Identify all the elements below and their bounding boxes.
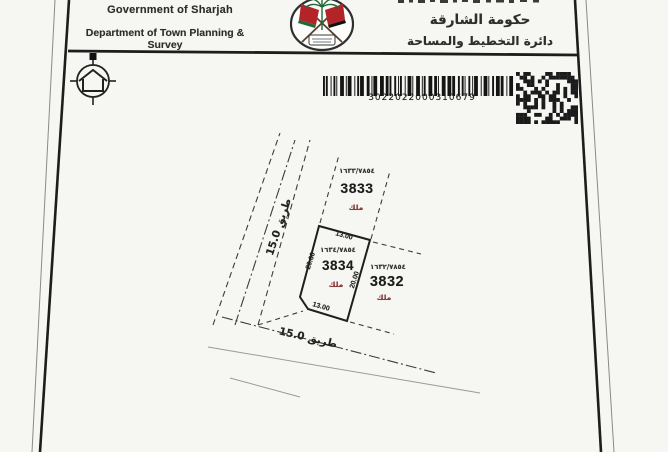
header-department-en: Department of Town Planning & Survey <box>70 27 260 51</box>
plot-3832-ref: ١٦٣٢/٧٨٥٤ <box>350 263 426 271</box>
north-symbol-icon <box>62 50 124 112</box>
barcode-number: 3022022000310679 <box>352 93 492 103</box>
plot-3833-number: 3833 <box>317 180 397 196</box>
road-left-centerline <box>235 140 295 325</box>
plot-3833-tenure: ملك <box>321 203 391 212</box>
header-department-ar: دائرة التخطيط والمساحة <box>400 34 560 48</box>
plot-3832-number: 3832 <box>349 274 425 290</box>
road-bottom-edges <box>208 311 480 397</box>
clipped-text-fragments <box>398 0 539 3</box>
sharjah-emblem-icon <box>289 0 355 52</box>
plot-3832-tenure: ملك <box>349 293 419 302</box>
qr-code-icon <box>516 72 578 124</box>
header-government-en: Government of Sharjah <box>90 4 250 16</box>
plot-3833-ref: ١٦٣٣/٧٨٥٤ <box>317 167 397 175</box>
road-left-edges <box>213 133 310 325</box>
scanned-survey-document: Government of Sharjah Department of Town… <box>0 0 668 452</box>
header-government-ar: حكومة الشارقة <box>410 12 550 28</box>
